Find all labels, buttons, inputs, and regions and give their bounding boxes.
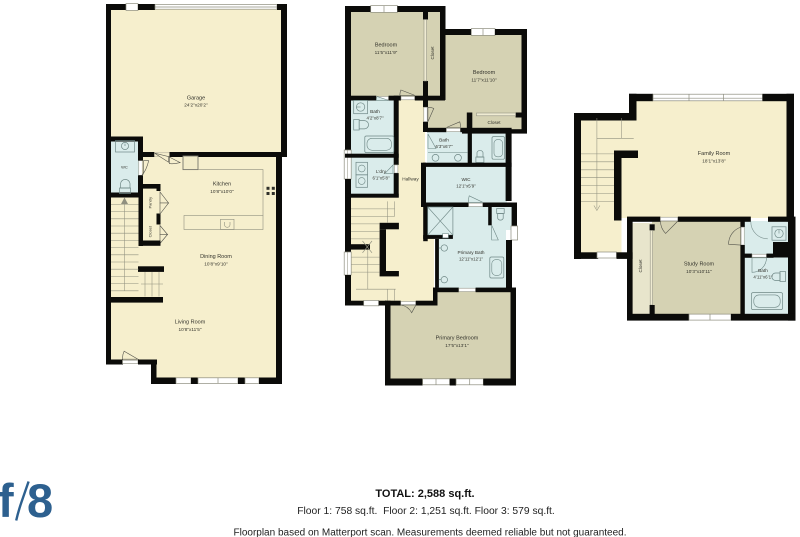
svg-text:Floorplan based on Matterport: Floorplan based on Matterport scan. Meas… bbox=[233, 528, 626, 537]
svg-text:17’5"x13’1": 17’5"x13’1" bbox=[445, 343, 469, 348]
svg-text:Garage: Garage bbox=[187, 96, 205, 102]
svg-text:Bedroom: Bedroom bbox=[375, 43, 398, 49]
svg-text:Bath: Bath bbox=[758, 268, 768, 273]
svg-text:6’1"x5’8": 6’1"x5’8" bbox=[372, 176, 389, 181]
svg-text:Bath: Bath bbox=[439, 138, 449, 143]
svg-text:Hallway: Hallway bbox=[402, 177, 419, 182]
svg-text:Dining Room: Dining Room bbox=[200, 254, 232, 260]
svg-text:f: f bbox=[0, 474, 14, 527]
svg-text:Study Room: Study Room bbox=[684, 262, 715, 268]
svg-text:Pantry: Pantry bbox=[148, 197, 153, 209]
svg-text:24’2"x20’2": 24’2"x20’2" bbox=[184, 103, 208, 108]
svg-text:Closet: Closet bbox=[487, 120, 501, 125]
svg-text:Living Room: Living Room bbox=[175, 320, 206, 326]
svg-text:4’11"x6’1": 4’11"x6’1" bbox=[753, 275, 773, 280]
svg-text:Closet: Closet bbox=[430, 46, 435, 60]
svg-text:10’8"x10’0": 10’8"x10’0" bbox=[210, 189, 234, 194]
svg-text:10’3"x10’11": 10’3"x10’11" bbox=[686, 269, 712, 274]
svg-text:11’7"x11’10": 11’7"x11’10" bbox=[471, 78, 497, 83]
svg-text:L’dry: L’dry bbox=[376, 169, 387, 174]
svg-text:Bath: Bath bbox=[370, 109, 380, 114]
svg-text:4’2"x8’7": 4’2"x8’7" bbox=[366, 116, 383, 121]
svg-text:10’8"x11’5": 10’8"x11’5" bbox=[178, 327, 201, 332]
svg-text:12’11"x12’1": 12’11"x12’1" bbox=[459, 257, 483, 262]
svg-text:Primary Bedroom: Primary Bedroom bbox=[436, 336, 479, 342]
svg-text:Floor 1: 758 sq.ft. Floor 2:: Floor 1: 758 sq.ft. Floor 2: 1,251 sq.ft… bbox=[297, 506, 555, 517]
svg-text:6’3"x6’7": 6’3"x6’7" bbox=[435, 144, 452, 149]
svg-text:8: 8 bbox=[27, 474, 53, 527]
svg-text:WC: WC bbox=[121, 165, 128, 170]
svg-text:Closet: Closet bbox=[638, 259, 643, 273]
svg-text:TOTAL: 2,588 sq.ft.: TOTAL: 2,588 sq.ft. bbox=[375, 488, 474, 500]
svg-text:Primary Bath: Primary Bath bbox=[457, 250, 484, 255]
svg-text:18’1"x13’8": 18’1"x13’8" bbox=[702, 159, 726, 164]
svg-text:Closet: Closet bbox=[148, 225, 153, 237]
svg-text:Bedroom: Bedroom bbox=[473, 70, 496, 76]
svg-text:WIC: WIC bbox=[461, 177, 471, 182]
svg-text:11’5"x11’9": 11’5"x11’9" bbox=[375, 50, 398, 55]
svg-text:Family Room: Family Room bbox=[698, 151, 731, 157]
svg-text:10’8"x9’10": 10’8"x9’10" bbox=[204, 262, 228, 267]
svg-text:12’1"x5’9": 12’1"x5’9" bbox=[456, 184, 476, 189]
svg-text:Kitchen: Kitchen bbox=[213, 182, 231, 188]
